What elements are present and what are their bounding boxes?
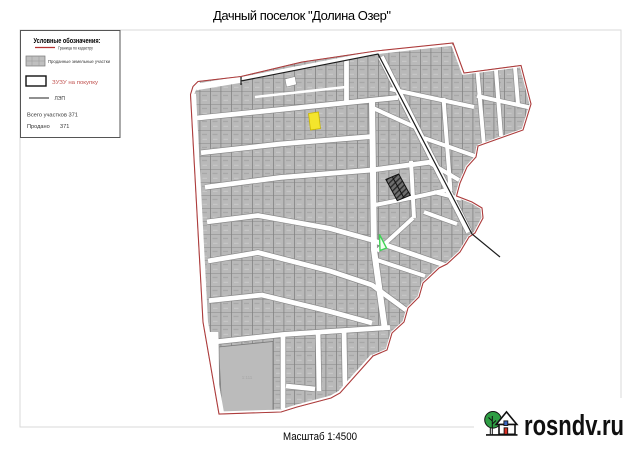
svg-text:371: 371 <box>60 124 69 130</box>
svg-text:Условные обозначения:: Условные обозначения: <box>34 36 101 45</box>
svg-text:Масштаб 1:4500: Масштаб 1:4500 <box>283 431 357 443</box>
svg-text:Проданные земельные участки: Проданные земельные участки <box>48 59 110 64</box>
svg-text:Продано: Продано <box>27 124 50 130</box>
svg-text:ЗУЗУ на покупку: ЗУЗУ на покупку <box>52 80 98 86</box>
svg-text:Дачный поселок "Долина Озер": Дачный поселок "Долина Озер" <box>213 8 391 23</box>
svg-text:Граница по кадастру: Граница по кадастру <box>58 46 94 51</box>
svg-text:1:111: 1:111 <box>242 375 253 380</box>
svg-text:ЛЭП: ЛЭП <box>55 96 66 102</box>
svg-text:rosndv.ru: rosndv.ru <box>524 410 624 442</box>
svg-text:Всего участков 371: Всего участков 371 <box>27 112 78 118</box>
